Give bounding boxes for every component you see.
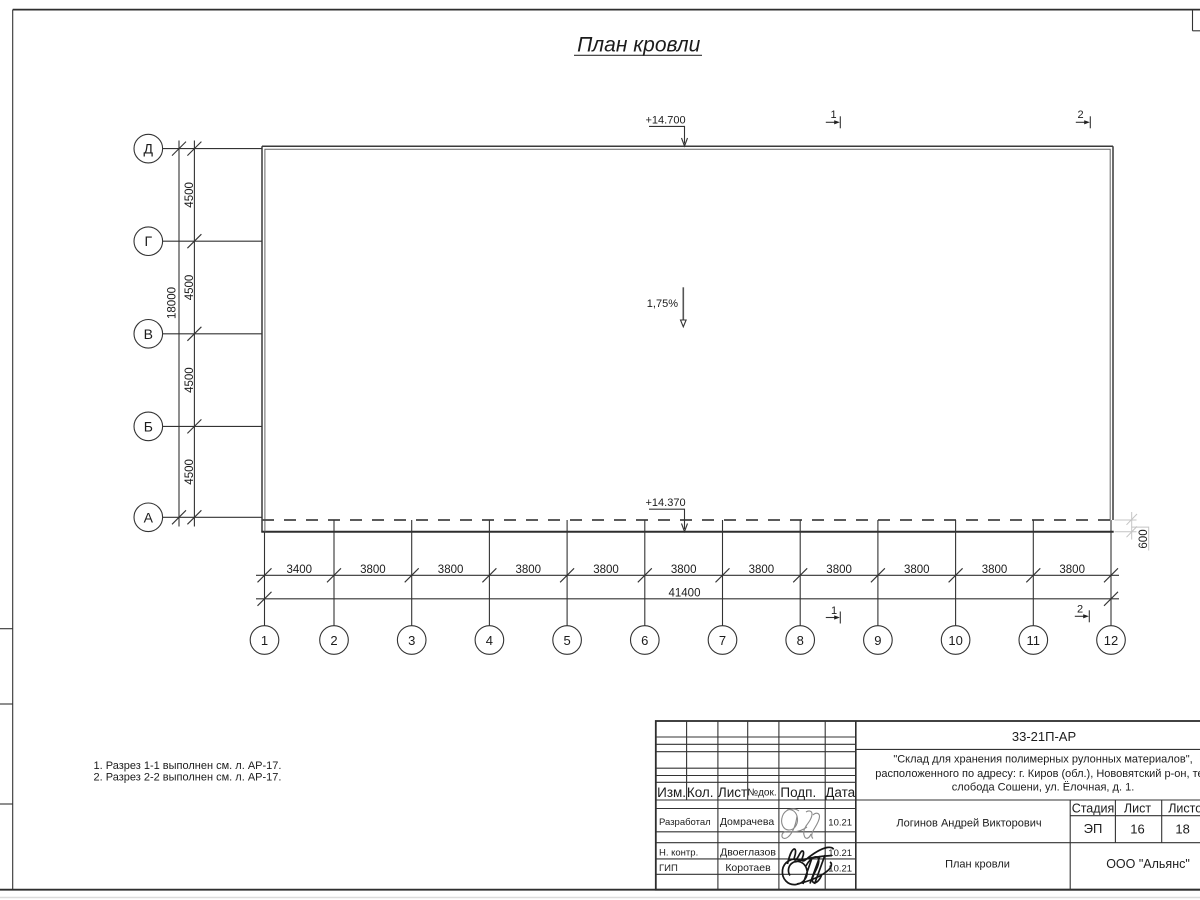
svg-text:3800: 3800 (826, 564, 852, 576)
svg-text:3800: 3800 (593, 564, 619, 576)
svg-text:слобода Сошени, ул. Ёлочная, д: слобода Сошени, ул. Ёлочная, д. 1. (952, 782, 1135, 794)
svg-text:2: 2 (1077, 109, 1083, 121)
svg-text:1: 1 (830, 109, 836, 121)
svg-text:18000: 18000 (167, 287, 179, 319)
svg-text:1: 1 (831, 605, 837, 617)
svg-text:План кровли: План кровли (577, 33, 701, 56)
svg-text:3800: 3800 (438, 564, 464, 576)
svg-text:4500: 4500 (184, 459, 196, 485)
svg-text:4500: 4500 (184, 182, 196, 208)
svg-text:10: 10 (948, 633, 962, 648)
svg-text:3800: 3800 (360, 564, 386, 576)
svg-text:Лист: Лист (1124, 802, 1151, 816)
svg-text:3400: 3400 (287, 564, 313, 576)
svg-text:"Склад для хранения полимерных: "Склад для хранения полимерных рулонных … (893, 754, 1192, 766)
svg-text:Листов: Листов (1168, 802, 1200, 816)
svg-text:10.21: 10.21 (828, 848, 852, 859)
svg-text:11: 11 (1027, 633, 1041, 648)
svg-text:ЭП: ЭП (1084, 821, 1103, 836)
svg-text:12: 12 (1104, 633, 1118, 648)
svg-text:Кол.: Кол. (687, 785, 714, 800)
svg-text:Логинов Андрей Викторович: Логинов Андрей Викторович (896, 818, 1041, 830)
svg-text:33-21П-АР: 33-21П-АР (1012, 729, 1076, 744)
svg-text:Разработал: Разработал (659, 817, 711, 828)
svg-text:Изм.: Изм. (657, 785, 686, 800)
svg-text:9: 9 (874, 633, 881, 648)
svg-text:4: 4 (486, 633, 493, 648)
svg-text:Подп.: Подп. (780, 785, 816, 800)
svg-text:Коротаев: Коротаев (725, 862, 771, 874)
svg-text:3800: 3800 (671, 564, 697, 576)
svg-text:Двоеглазов: Двоеглазов (720, 847, 776, 859)
svg-text:5: 5 (563, 633, 570, 648)
svg-text:Д: Д (144, 141, 154, 157)
svg-text:Н. контр.: Н. контр. (659, 848, 698, 859)
svg-text:3800: 3800 (1059, 564, 1085, 576)
svg-text:3: 3 (408, 633, 415, 648)
svg-text:16: 16 (1130, 822, 1144, 837)
svg-text:Домрачева: Домрачева (720, 816, 775, 828)
svg-text:расположенного по адресу: г. К: расположенного по адресу: г. Киров (обл.… (875, 768, 1200, 780)
svg-text:ООО "Альянс": ООО "Альянс" (1106, 857, 1190, 871)
svg-text:18: 18 (1175, 822, 1189, 837)
svg-text:ГИП: ГИП (659, 863, 678, 874)
svg-text:Лист: Лист (718, 785, 747, 800)
svg-text:2: 2 (1077, 604, 1083, 616)
svg-text:6: 6 (641, 633, 648, 648)
svg-text:1,75%: 1,75% (647, 298, 678, 310)
svg-text:600: 600 (1138, 529, 1150, 548)
svg-text:2: 2 (330, 633, 337, 648)
svg-text:Стадия: Стадия (1072, 802, 1115, 816)
svg-text:1. Разрез 1-1 выполнен см. л.: 1. Разрез 1-1 выполнен см. л. АР-17. (94, 760, 282, 772)
svg-text:Б: Б (144, 418, 153, 434)
svg-text:Дата: Дата (825, 785, 855, 800)
svg-text:10.21: 10.21 (828, 818, 852, 829)
svg-text:В: В (144, 326, 153, 342)
svg-text:3800: 3800 (516, 564, 542, 576)
svg-text:+14.700: +14.700 (646, 115, 686, 127)
svg-text:4500: 4500 (184, 367, 196, 393)
svg-text:А: А (144, 509, 154, 525)
svg-text:План кровли: План кровли (945, 859, 1010, 871)
svg-text:41400: 41400 (669, 588, 701, 600)
svg-text:№док.: №док. (747, 788, 776, 799)
svg-text:+14.370: +14.370 (646, 497, 686, 509)
svg-text:4500: 4500 (184, 275, 196, 301)
svg-text:Г: Г (145, 233, 153, 249)
svg-text:2. Разрез 2-2 выполнен см. л.: 2. Разрез 2-2 выполнен см. л. АР-17. (94, 771, 282, 783)
svg-text:3800: 3800 (982, 564, 1008, 576)
svg-text:3800: 3800 (749, 564, 775, 576)
svg-text:3800: 3800 (904, 564, 930, 576)
svg-text:1: 1 (261, 633, 268, 648)
svg-text:8: 8 (797, 633, 804, 648)
svg-text:7: 7 (719, 633, 726, 648)
